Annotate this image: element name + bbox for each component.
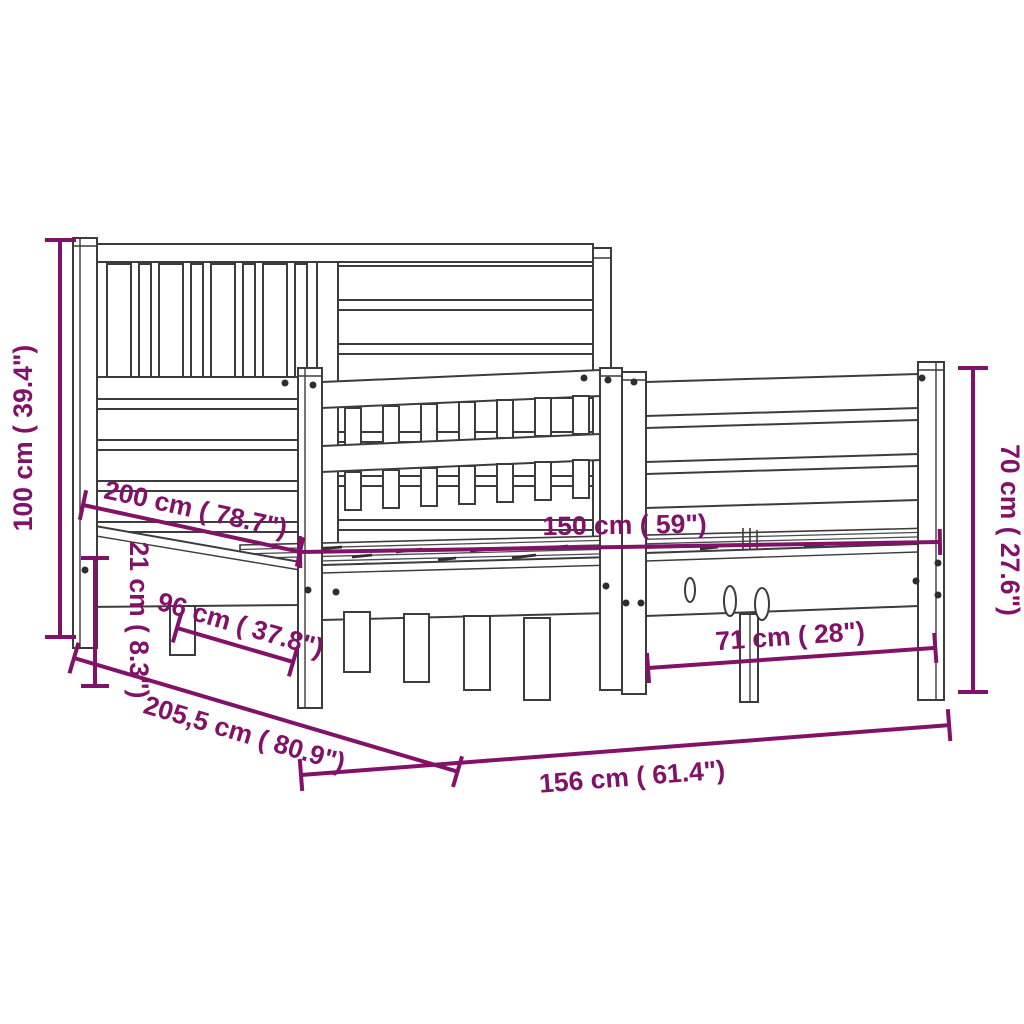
dimension-total-width: 156 cm ( 61.4")	[300, 709, 953, 817]
dimension-total-length: 205,5 cm ( 80.9")	[63, 643, 462, 809]
dimension-label-headboard-height: 100 cm ( 39.4")	[8, 345, 38, 531]
dimension-label-inner-width: 150 cm ( 59")	[542, 509, 707, 542]
product-dimension-image: 100 cm ( 39.4") 200 cm ( 78.7") 21 cm ( …	[0, 0, 1024, 1024]
headboard-vertical-slats	[107, 264, 307, 377]
dimension-footboard-inner-width: 71 cm ( 28")	[645, 611, 936, 683]
dimension-headboard-height: 100 cm ( 39.4")	[8, 240, 76, 637]
dimension-label-total-width: 156 cm ( 61.4")	[538, 754, 726, 798]
dimension-footboard-height: 70 cm ( 27.6")	[958, 368, 1024, 692]
bed-frame-diagram: 100 cm ( 39.4") 200 cm ( 78.7") 21 cm ( …	[0, 0, 1024, 1024]
dimension-label-footboard-inner-width: 71 cm ( 28")	[714, 616, 865, 656]
dimension-label-footboard-height: 70 cm ( 27.6")	[995, 444, 1024, 616]
